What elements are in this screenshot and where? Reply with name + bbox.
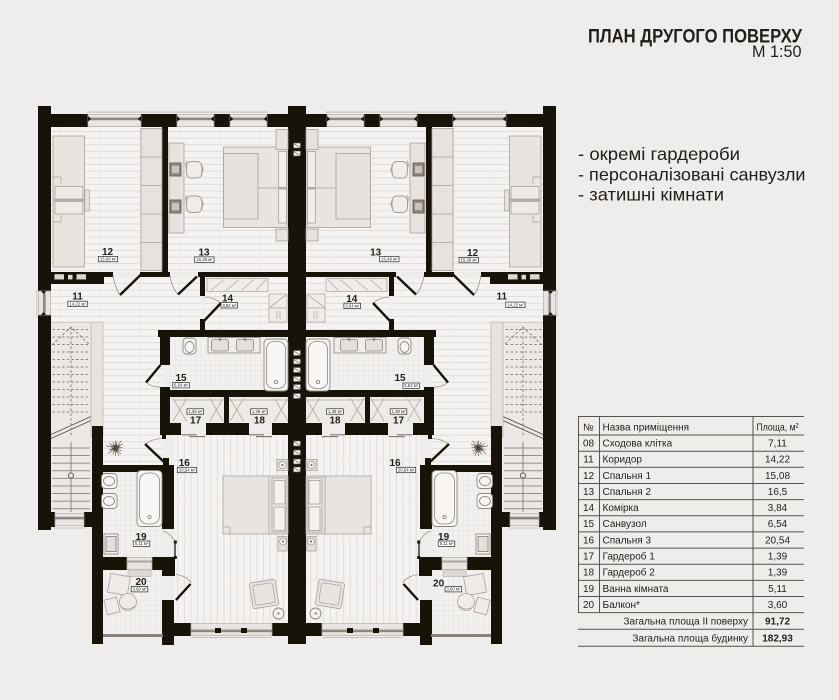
- svg-text:3,60 м²: 3,60 м²: [133, 587, 148, 592]
- svg-text:3,60: 3,60: [768, 600, 788, 611]
- svg-text:1,39 м²: 1,39 м²: [328, 409, 343, 414]
- svg-text:Гардероб 1: Гардероб 1: [603, 551, 656, 563]
- svg-text:- затишні кімнати: - затишні кімнати: [578, 185, 724, 205]
- svg-text:182,93: 182,93: [762, 634, 793, 645]
- svg-text:Спальня 3: Спальня 3: [603, 535, 652, 546]
- svg-text:12: 12: [583, 471, 595, 482]
- svg-text:18: 18: [329, 415, 341, 426]
- svg-text:3,84 м²: 3,84 м²: [222, 303, 237, 308]
- svg-text:- персоналізовані санвузли: - персоналізовані санвузли: [578, 164, 806, 184]
- svg-text:16,49 м²: 16,49 м²: [381, 257, 398, 262]
- svg-text:20: 20: [433, 578, 445, 589]
- svg-text:1,39: 1,39: [768, 568, 788, 579]
- svg-text:6,54: 6,54: [768, 519, 788, 530]
- svg-text:19: 19: [583, 584, 595, 595]
- svg-text:Коридор: Коридор: [603, 455, 643, 466]
- svg-text:17: 17: [190, 415, 202, 426]
- svg-text:Назва приміщення: Назва приміщення: [603, 422, 690, 433]
- svg-text:1,39: 1,39: [768, 552, 788, 563]
- svg-text:16: 16: [583, 535, 595, 546]
- svg-text:18: 18: [254, 415, 266, 426]
- svg-text:08: 08: [583, 439, 595, 450]
- svg-text:16,5: 16,5: [768, 487, 788, 498]
- svg-text:17: 17: [583, 552, 595, 563]
- svg-text:Сходова клітка: Сходова клітка: [603, 439, 673, 450]
- svg-text:Комірка: Комірка: [603, 503, 640, 514]
- svg-text:Загальна площа ІІ поверху: Загальна площа ІІ поверху: [623, 617, 748, 628]
- svg-text:Гардероб 2: Гардероб 2: [603, 567, 656, 579]
- svg-text:1,39 м²: 1,39 м²: [252, 409, 267, 414]
- svg-text:6,54 м²: 6,54 м²: [404, 383, 419, 388]
- svg-text:16,49 м²: 16,49 м²: [196, 257, 213, 262]
- svg-text:20: 20: [583, 600, 595, 611]
- svg-text:11: 11: [583, 455, 594, 466]
- svg-text:Площа, м²: Площа, м²: [757, 422, 800, 433]
- svg-text:Санвузол: Санвузол: [603, 519, 647, 530]
- svg-text:18: 18: [583, 568, 595, 579]
- svg-text:17: 17: [393, 415, 405, 426]
- svg-text:91,72: 91,72: [765, 617, 790, 628]
- svg-text:14,22: 14,22: [765, 455, 790, 466]
- svg-text:13: 13: [583, 487, 595, 498]
- svg-text:20,54: 20,54: [765, 535, 790, 546]
- svg-text:3,84: 3,84: [768, 503, 788, 514]
- svg-text:5,11 м²: 5,11 м²: [440, 541, 454, 546]
- svg-text:11: 11: [497, 292, 508, 303]
- svg-text:Загальна площа будинку: Загальна площа будинку: [632, 633, 748, 645]
- svg-text:Спальня 1: Спальня 1: [603, 471, 652, 482]
- svg-text:7,11: 7,11: [768, 439, 787, 450]
- svg-text:15,08 м²: 15,08 м²: [461, 258, 478, 263]
- svg-text:Ванна кімната: Ванна кімната: [603, 584, 669, 595]
- svg-text:14: 14: [583, 503, 595, 514]
- svg-text:3,60 м²: 3,60 м²: [446, 587, 461, 592]
- svg-text:1,39 м²: 1,39 м²: [188, 409, 203, 414]
- svg-text:- окремі гардероби: - окремі гардероби: [578, 144, 740, 164]
- svg-text:1,39 м²: 1,39 м²: [392, 409, 407, 414]
- svg-text:5,11: 5,11: [768, 584, 787, 595]
- svg-text:15,08 м²: 15,08 м²: [100, 257, 117, 262]
- svg-text:14,22 м²: 14,22 м²: [69, 301, 86, 306]
- svg-text:20,54 м²: 20,54 м²: [398, 468, 415, 473]
- svg-text:5,11 м²: 5,11 м²: [135, 541, 149, 546]
- svg-text:14,22 м²: 14,22 м²: [507, 302, 524, 307]
- svg-text:20,54 м²: 20,54 м²: [179, 468, 196, 473]
- svg-text:6,54 м²: 6,54 м²: [174, 383, 189, 388]
- svg-text:Балкон*: Балкон*: [603, 600, 641, 611]
- svg-text:Спальня 2: Спальня 2: [603, 487, 652, 498]
- svg-text:15: 15: [583, 519, 595, 530]
- svg-text:М 1:50: М 1:50: [752, 43, 802, 61]
- svg-text:№: №: [583, 422, 594, 433]
- svg-text:15,08: 15,08: [765, 471, 790, 482]
- svg-text:3,84 м²: 3,84 м²: [345, 303, 360, 308]
